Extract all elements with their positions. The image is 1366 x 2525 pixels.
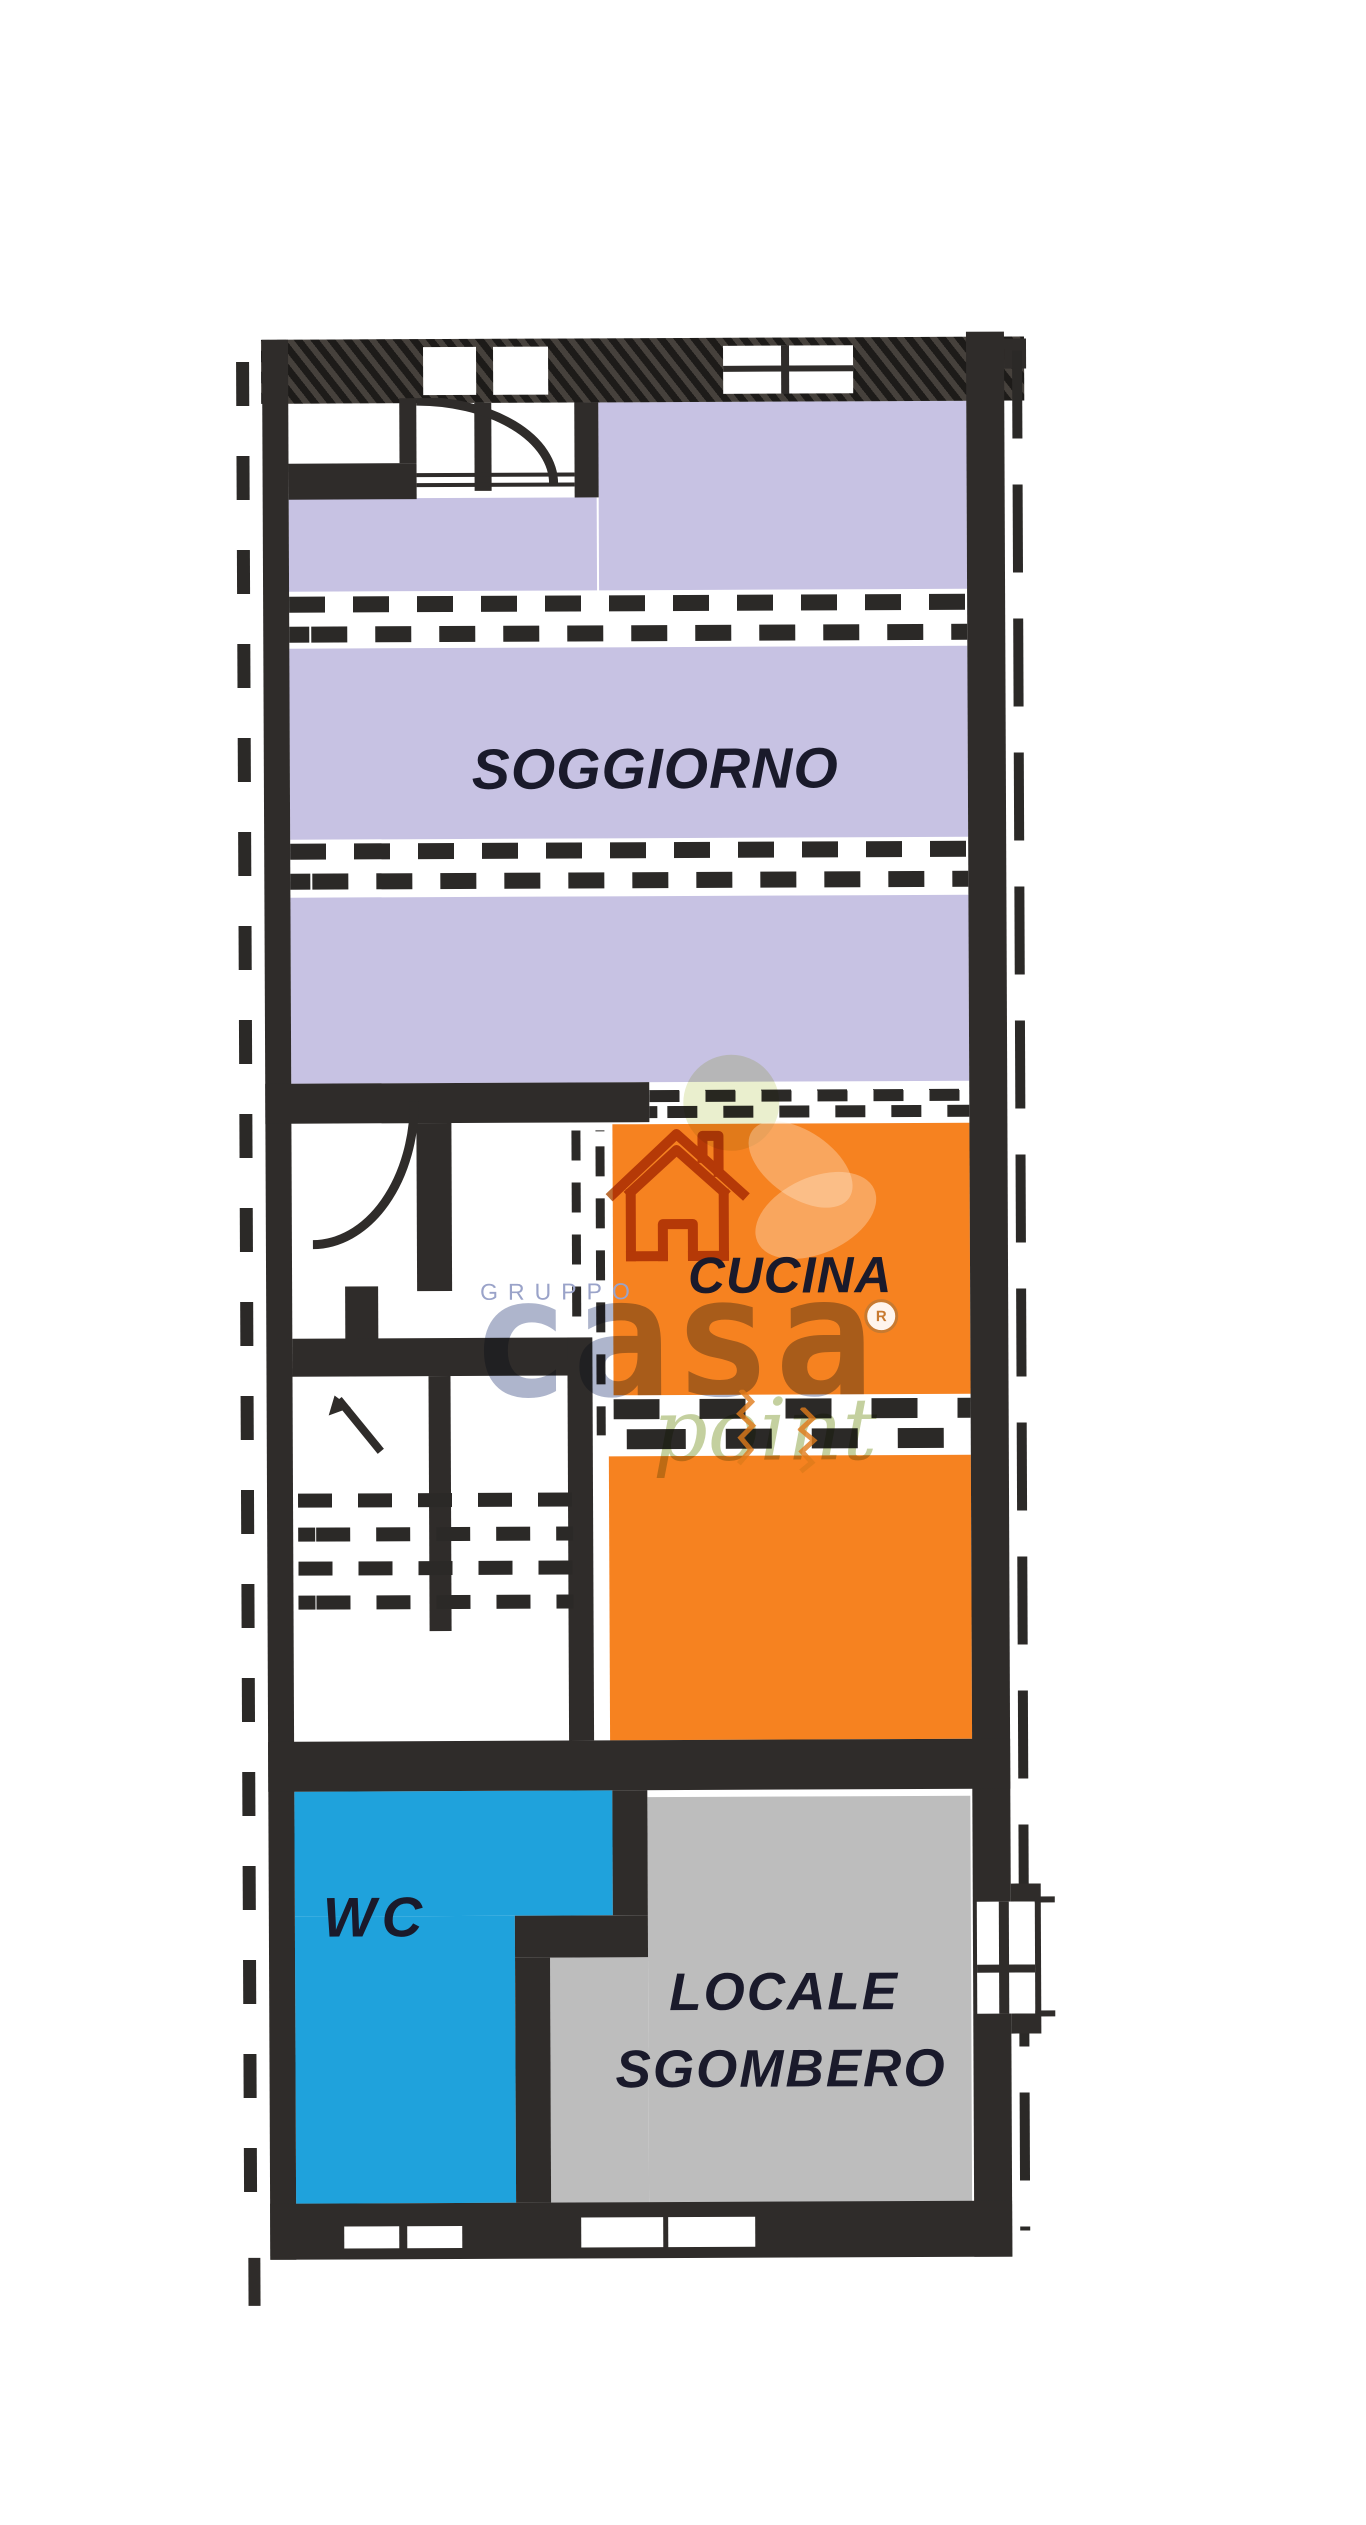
label-locale: LOCALE <box>669 1965 899 2019</box>
room-soggiorno-lower <box>290 895 969 1084</box>
entry-door-arc <box>409 398 559 491</box>
wall-stub-landing <box>345 1286 378 1341</box>
watermark-squiggle1 <box>736 1390 758 1466</box>
window-right-transom <box>977 1964 1035 1972</box>
wall-under-entry-window <box>289 463 417 500</box>
room-cucina-lower <box>609 1455 972 1741</box>
window-bottom1 <box>344 2226 399 2248</box>
room-soggiorno-upper-left <box>289 497 597 591</box>
label-soggiorno: SOGGIORNO <box>472 740 839 799</box>
room-wc-lower <box>295 1916 516 2204</box>
boundary-dashes-left <box>236 362 257 2242</box>
wall-above-wc <box>268 1739 1010 1792</box>
window-bottom2 <box>407 2226 462 2248</box>
floorplan-page: GRUPPO casa R point SOGGIORNO CUCINA WC … <box>0 0 1366 2525</box>
vestibule-door-arc <box>304 1093 425 1254</box>
window-right-sill-bottom <box>1035 2010 1055 2016</box>
label-cucina: CUCINA <box>688 1249 893 1301</box>
stair-tread-row4 <box>298 1594 573 1609</box>
stairs-direction-arrow <box>321 1381 391 1456</box>
room-soggiorno-upper <box>598 401 967 591</box>
floorplan: GRUPPO casa R point SOGGIORNO CUCINA WC … <box>0 0 1366 2525</box>
registered-trademark-icon: R <box>864 1299 898 1333</box>
wall-wc-sgombero-lower <box>515 1958 551 2203</box>
stair-tread-row1 <box>298 1492 573 1507</box>
window-bottom4 <box>668 2217 755 2247</box>
stair-tread-row3 <box>298 1560 573 1575</box>
window-right-mullion <box>999 1902 1009 2014</box>
soggiorno-divider1-row2 <box>289 624 967 643</box>
label-wc: WC <box>323 1889 429 1945</box>
window-bottom3 <box>581 2217 663 2247</box>
window-right-sill-top <box>1035 1896 1055 1902</box>
watermark-script-text: point <box>653 1387 878 1474</box>
stair-tread-row2 <box>298 1526 573 1541</box>
wall-bottom-left-tick <box>248 2258 260 2306</box>
wall-wc-sgombero-upper <box>612 1790 648 1915</box>
soggiorno-divider2-row2 <box>290 871 968 890</box>
watermark-squiggle2 <box>798 1407 818 1473</box>
soggiorno-divider2-row1 <box>290 841 968 860</box>
label-sgombero: SGOMBERO <box>615 2042 946 2096</box>
wall-top-band <box>261 337 1024 404</box>
soggiorno-divider1-row1 <box>289 594 967 613</box>
window-top-right-mullion-h <box>723 365 853 372</box>
window-top-left-pane1 <box>423 347 476 395</box>
window-top-left-pane2 <box>493 347 548 395</box>
wall-wc-notch <box>515 1915 648 1958</box>
wall-entry-stub <box>574 402 598 497</box>
